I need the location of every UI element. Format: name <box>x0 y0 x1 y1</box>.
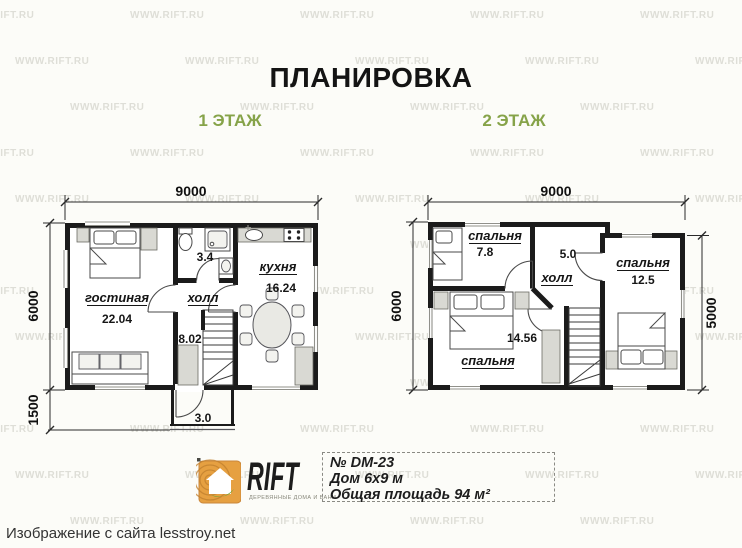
bedroom-small-name: спальня <box>468 228 522 243</box>
watermark-text: WWW.RIFT.RU <box>0 148 34 159</box>
watermark-text: WWW.RIFT.RU <box>0 10 34 21</box>
watermark-text: WWW.RIFT.RU <box>300 10 374 21</box>
rift-logo-icon <box>196 458 241 504</box>
info-box: № DM-23 Дом 6х9 м Общая площадь 94 м² <box>322 452 555 502</box>
kitchen-area: 16.24 <box>266 281 296 295</box>
watermark-text: WWW.RIFT.RU <box>410 516 484 527</box>
single-bed-icon <box>433 228 462 280</box>
brand-name: RIFT <box>247 458 299 496</box>
floor1-plan: 9000 6000 1500 <box>15 178 360 443</box>
hall-area: 5.0 <box>560 247 577 261</box>
watermark-text: WWW.RIFT.RU <box>470 148 544 159</box>
watermark-text: WWW.RIFT.RU <box>695 470 742 481</box>
page-title: ПЛАНИРОВКА <box>0 62 742 94</box>
sofa-icon <box>72 352 148 384</box>
floor2-plan: 9000 6000 5000 <box>385 178 730 443</box>
floor2-dim-right: 5000 <box>703 297 719 328</box>
watermark-text: WWW.RIFT.RU <box>580 102 654 113</box>
watermark-text: WWW.RIFT.RU <box>130 10 204 21</box>
toilet-icon <box>179 228 192 251</box>
watermark-text: WWW.RIFT.RU <box>240 516 314 527</box>
watermark-text: WWW.RIFT.RU <box>640 148 714 159</box>
watermark-text: WWW.RIFT.RU <box>130 148 204 159</box>
bath-area: 3.4 <box>197 250 214 264</box>
house-size: Дом 6х9 м <box>330 471 554 487</box>
hall-name: холл <box>186 290 218 305</box>
floor1-dim-width: 9000 <box>175 183 206 199</box>
kitchen-name: кухня <box>260 259 297 274</box>
floor2-label: 2 ЭТАЖ <box>444 111 584 131</box>
hall-area: 8.02 <box>178 332 202 346</box>
watermark-text: WWW.RIFT.RU <box>300 148 374 159</box>
stove-icon <box>284 229 304 242</box>
shower-icon <box>205 228 230 251</box>
bedroom-right-name: спальня <box>616 255 670 270</box>
floor1-dim-porch: 1500 <box>25 394 41 425</box>
bedroom-right-area: 12.5 <box>631 273 655 287</box>
project-number: № DM-23 <box>330 455 554 471</box>
watermark-text: WWW.RIFT.RU <box>470 10 544 21</box>
bedroom-small-area: 7.8 <box>477 245 494 259</box>
watermark-text: WWW.RIFT.RU <box>580 516 654 527</box>
brand-bar: RIFT ДЕРЕВЯННЫЕ ДОМА И БАНИ <box>196 458 336 508</box>
floor2-dim-height: 6000 <box>388 290 404 321</box>
kitchen-sink-icon <box>246 230 263 241</box>
total-area: Общая площадь 94 м² <box>330 487 554 503</box>
bedroom-large-area: 14.56 <box>507 331 537 345</box>
wardrobe-icon <box>542 330 560 383</box>
hall-name: холл <box>540 270 572 285</box>
bedroom-large-name: спальня <box>461 353 515 368</box>
kitchen-cabinet <box>295 347 313 385</box>
bath-sink-icon <box>219 258 233 274</box>
floor2-dim-width: 9000 <box>540 183 571 199</box>
watermark-text: WWW.RIFT.RU <box>640 10 714 21</box>
porch-area: 3.0 <box>195 411 212 425</box>
floor1-dim-height: 6000 <box>25 290 41 321</box>
floorplan-page: WWW.RIFT.RUWWW.RIFT.RUWWW.RIFT.RUWWW.RIF… <box>0 0 742 548</box>
watermark-text: WWW.RIFT.RU <box>70 102 144 113</box>
watermark-text: WWW.RIFT.RU <box>15 470 89 481</box>
living-room-area: 22.04 <box>102 312 132 326</box>
living-room-name: гостиная <box>85 290 149 305</box>
floor1-label: 1 ЭТАЖ <box>160 111 300 131</box>
wardrobe-icon <box>178 345 198 385</box>
source-caption: Изображение с сайта lesstroy.net <box>6 525 235 542</box>
